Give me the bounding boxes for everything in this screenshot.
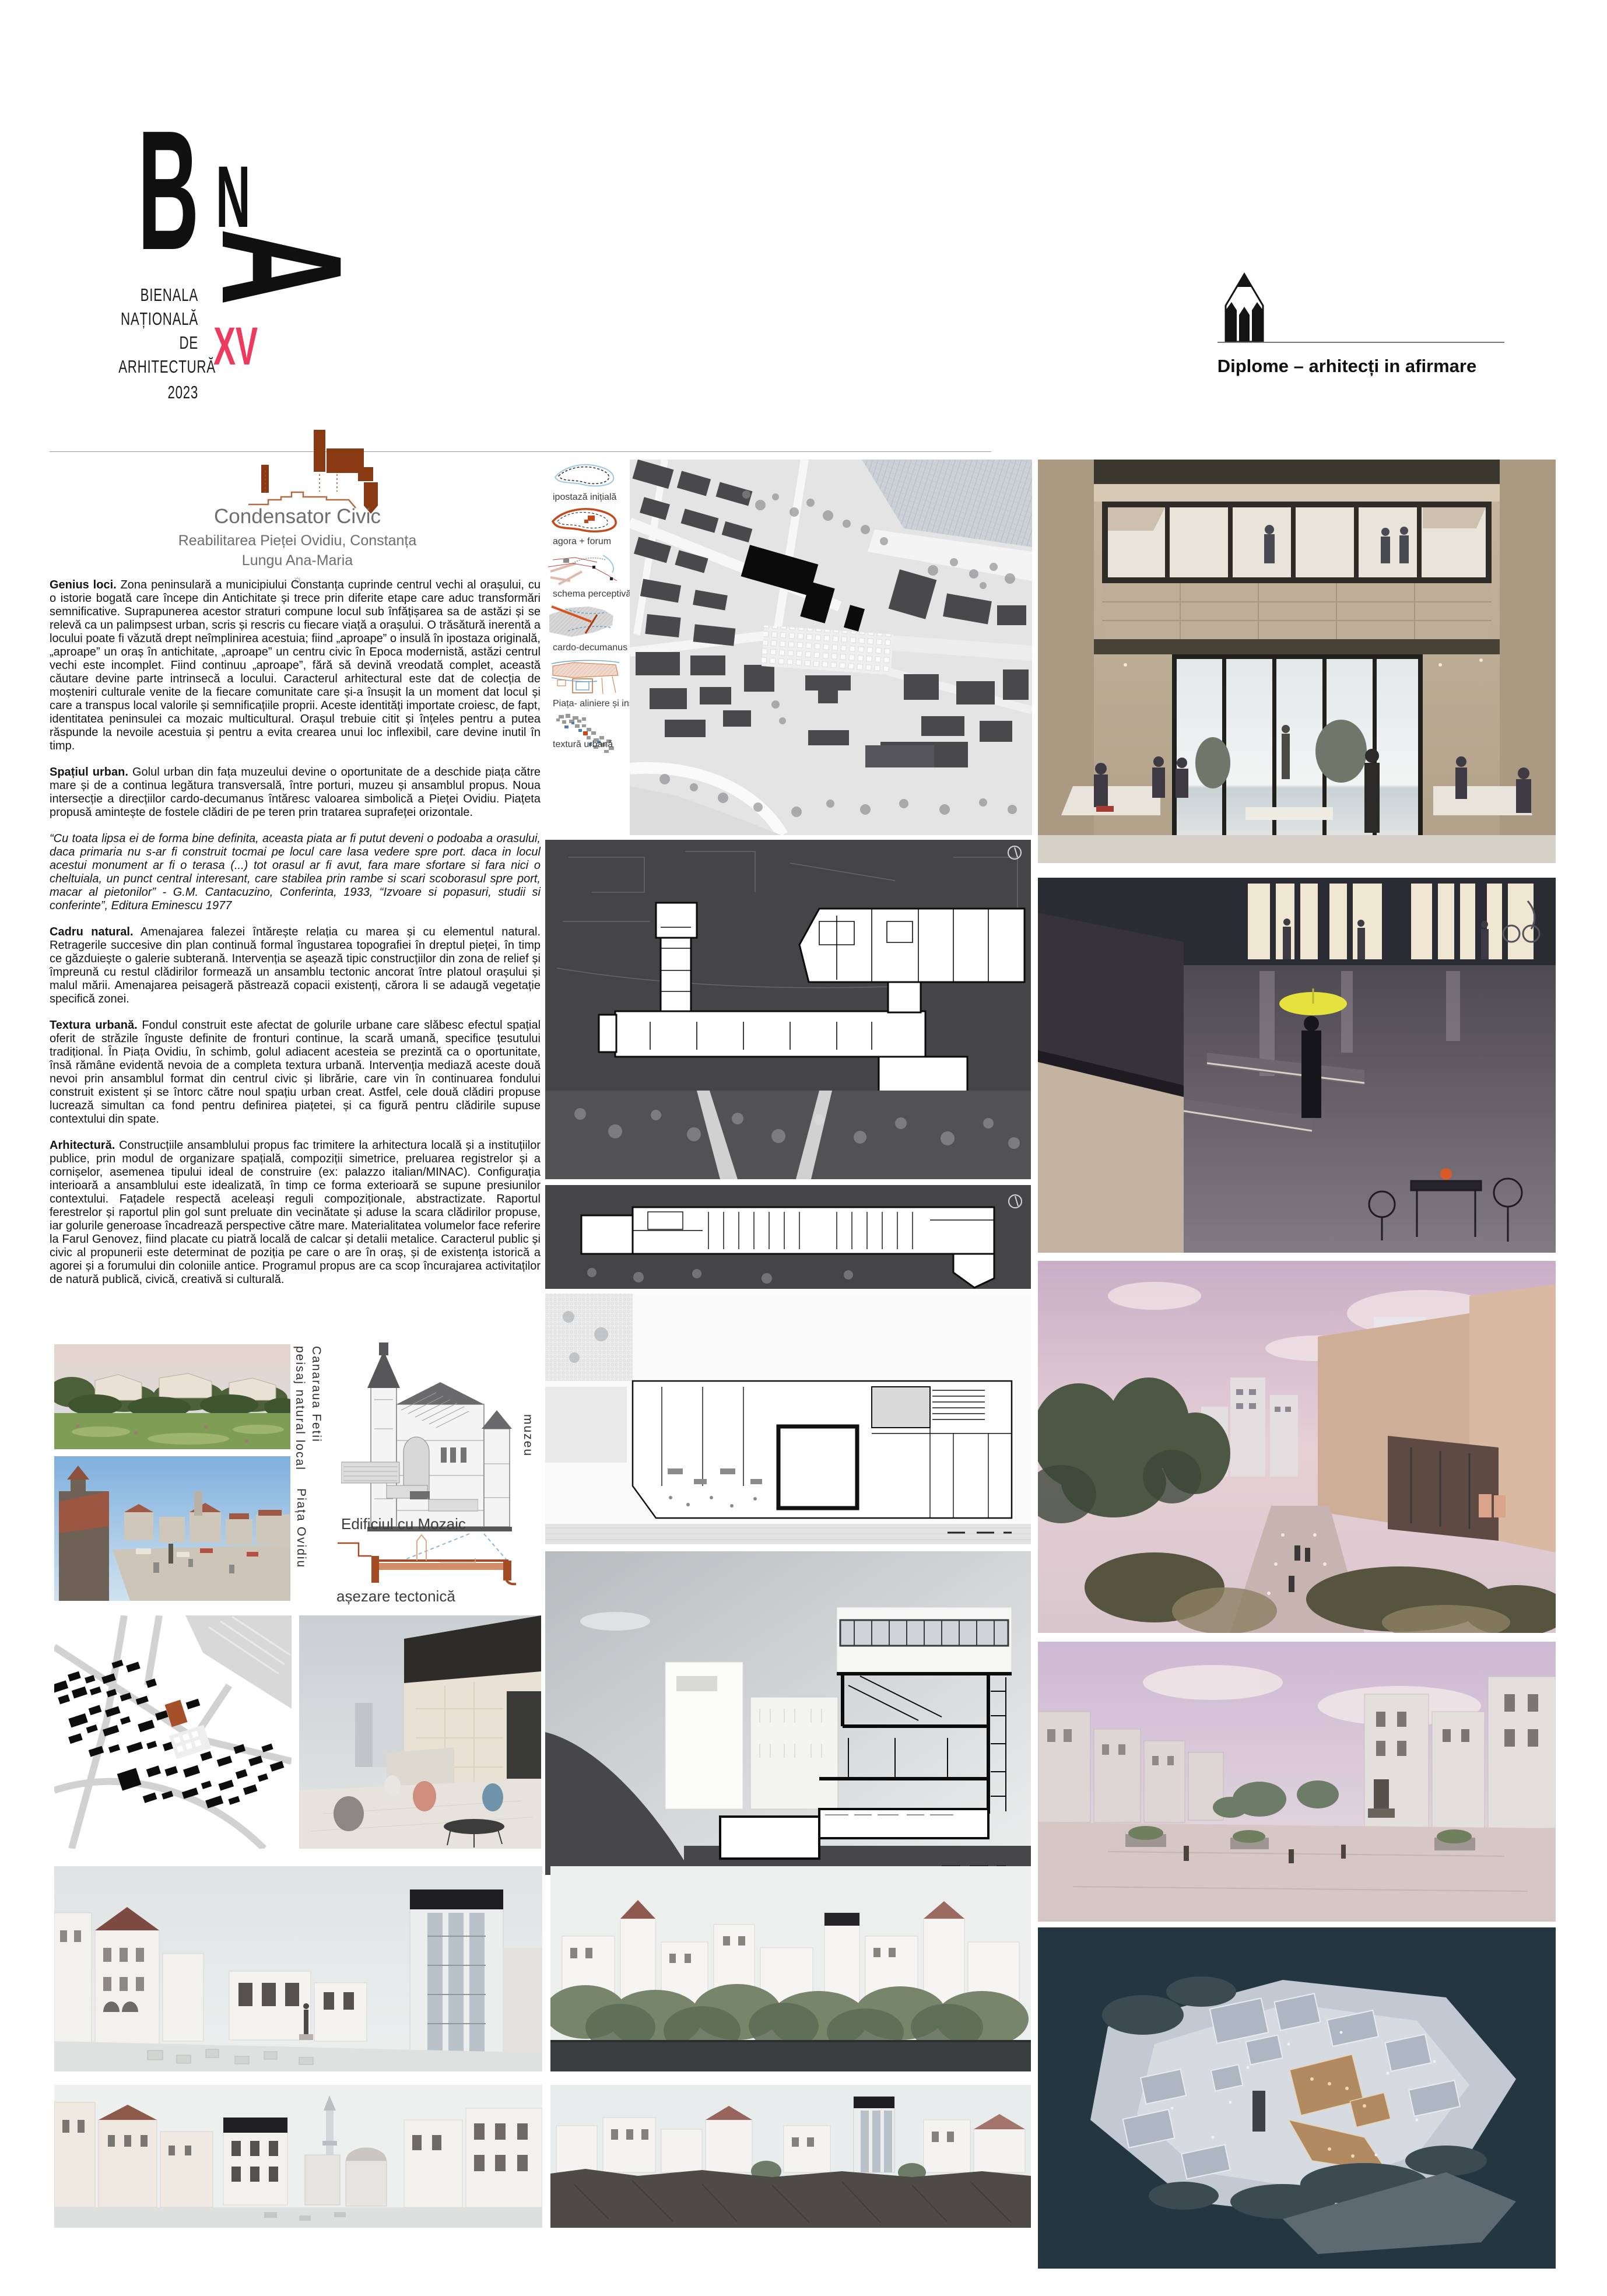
diagram-label: schema perceptivă — [553, 589, 631, 600]
paragraph-lead: Spațiul urban. — [50, 766, 128, 779]
black-figure-ground-map — [54, 1615, 292, 1849]
paragraph-lead: Textura urbană. — [50, 1019, 138, 1032]
logo-letter-n: N — [216, 153, 251, 240]
cliff-elevation-render — [550, 2085, 1031, 2228]
gallery-level-plan — [545, 1185, 1031, 1289]
paragraph-lead: Cadru natural. — [50, 926, 134, 938]
terrace-render — [299, 1615, 541, 1849]
faleza-dusk-render — [1038, 1261, 1556, 1633]
caption-piata-ovidiu: Piața Ovidiu — [294, 1488, 308, 1568]
header-divider — [50, 451, 991, 452]
paragraph-cadru-natural: Cadru natural. Amenajarea falezei întăre… — [50, 926, 541, 1006]
program-label: Diplome – arhitecți in afirmare — [1178, 356, 1516, 377]
logo-line-4: ARHITECTURĂ — [118, 356, 198, 377]
project-title: Condensator Civic — [146, 505, 449, 528]
plaza-dusk-render — [1038, 1642, 1556, 1922]
paragraph-arhitectura: Arhitectură. Construcțiile ansamblului p… — [50, 1139, 541, 1287]
paragraph-spatiul-urban: Spațiul urban. Golul urban din fața muze… — [50, 766, 541, 819]
street-perspective-render — [54, 2085, 542, 2228]
competition-poster: B N A BIENALA NAȚIONALĂ DE ARHITECTURĂ 2… — [0, 0, 1607, 2296]
ground-floor-plan — [545, 1294, 1031, 1544]
faleza-elevation-render — [550, 1866, 1031, 2071]
logo-letter-a: A — [196, 229, 367, 306]
bna-logo: B N A BIENALA NAȚIONALĂ DE ARHITECTURĂ 2… — [0, 0, 408, 420]
diagram-piata-alignment — [550, 658, 620, 696]
project-title-block: Condensator Civic Reabilitarea Pieței Ov… — [146, 505, 449, 587]
caption-landscape-line2: Canaraua Fetii — [309, 1346, 323, 1443]
logo-line-1: BIENALA — [118, 285, 198, 306]
diagram-cardo-decumanus — [548, 602, 619, 640]
tectonic-settlement-sketch — [335, 1533, 528, 1587]
logo-line-2: NAȚIONALĂ — [118, 309, 198, 329]
project-subtitle: Reabilitarea Pieței Ovidiu, Constanța — [146, 532, 449, 549]
pencil-house-icon — [1216, 272, 1272, 344]
program-rule — [1217, 342, 1504, 343]
mosaic-edifice-diagram — [341, 1461, 478, 1515]
logo-line-3: DE — [118, 332, 198, 353]
diagram-agora-forum — [549, 505, 620, 535]
logo-year: 2023 — [118, 382, 198, 403]
diagram-initial-state — [553, 460, 618, 490]
diagram-label: ipostază inițială — [553, 492, 616, 503]
landscape-photo-canaraua-fetii — [54, 1344, 290, 1449]
aerial-axonometric-render — [1038, 1927, 1556, 2269]
paragraph-text: Construcțiile ansamblului propus fac tri… — [50, 1139, 541, 1286]
evening-plaza-render — [1038, 878, 1556, 1253]
paragraph-lead: Genius loci. — [50, 579, 117, 591]
paragraph-textura-urbana: Textura urbană. Fondul construit este af… — [50, 1019, 541, 1126]
essay-column: Genius loci. Zona peninsulară a municipi… — [50, 579, 541, 1299]
diagram-label: textură urbană — [553, 739, 613, 750]
building-section-drawing — [545, 1551, 1031, 1875]
caption-muzeu: muzeu — [521, 1414, 535, 1457]
city-figure-ground-map — [630, 460, 1032, 835]
diagram-label: agora + forum — [553, 537, 611, 547]
quote-text: “Cu toata lipsa ei de forma bine definit… — [50, 832, 541, 912]
caption-edificiul-cu-mozaic: Edificiul cu Mozaic — [341, 1515, 466, 1533]
underground-level-plan — [545, 840, 1031, 1179]
paragraph-lead: Arhitectură. — [50, 1139, 115, 1152]
interior-hall-render — [1038, 460, 1556, 863]
project-author: Lungu Ana-Maria — [146, 552, 449, 569]
piata-ovidiu-photo — [54, 1456, 290, 1601]
paragraph-text: Fondul construit este afectat de goluril… — [50, 1019, 541, 1126]
paragraph-quote: “Cu toata lipsa ei de forma bine definit… — [50, 832, 541, 913]
diagram-perceptual-scheme — [547, 552, 620, 587]
caption-landscape-line1: peisaj natural local — [293, 1346, 307, 1471]
caption-asezare-tectonica: așezare tectonică — [336, 1587, 455, 1606]
logo-edition-xv: XV — [213, 320, 258, 373]
plaza-street-render — [54, 1866, 542, 2071]
paragraph-genius-loci: Genius loci. Zona peninsulară a municipi… — [50, 579, 541, 753]
paragraph-text: Zona peninsulară a municipiului Constanț… — [50, 579, 541, 752]
